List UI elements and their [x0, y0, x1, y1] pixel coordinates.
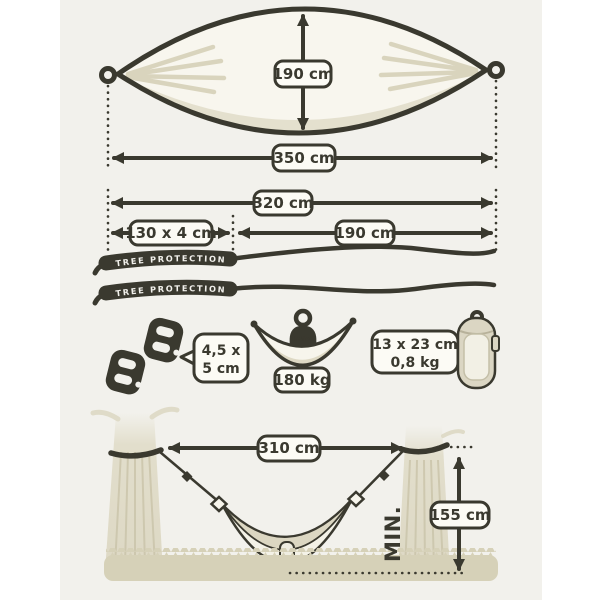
hammock-spec-sheet: 190 cm 350 cm 320 cm 130 x 4 cm 190 cm T… [0, 0, 600, 600]
total-length-label: 320 cm [252, 194, 313, 212]
rope-length-label: 190 cm [334, 224, 395, 242]
capacity-label: 180 kg [273, 371, 330, 389]
carabiner-size-line1: 4,5 x [202, 343, 241, 359]
hang-distance-label: 310 cm [258, 439, 319, 457]
pack-size-bubble: 13 x 23 cm 0,8 kg [372, 331, 470, 373]
carabiner-size-line2: 5 cm [202, 361, 240, 377]
grass-ground [104, 548, 498, 581]
pack-size-line2: 0,8 kg [390, 355, 439, 371]
min-label: MIN. [381, 506, 405, 562]
hammock-length-label: 350 cm [273, 149, 334, 167]
pack-size-line1: 13 x 23 cm [372, 337, 458, 353]
strap-size-label: 130 x 4 cm [125, 224, 217, 242]
max-weight-text: max. [292, 334, 314, 343]
hang-height-label: 155 cm [429, 506, 490, 524]
diagram-canvas: 190 cm 350 cm 320 cm 130 x 4 cm 190 cm T… [0, 0, 600, 600]
hammock-width-label: 190 cm [272, 65, 333, 83]
